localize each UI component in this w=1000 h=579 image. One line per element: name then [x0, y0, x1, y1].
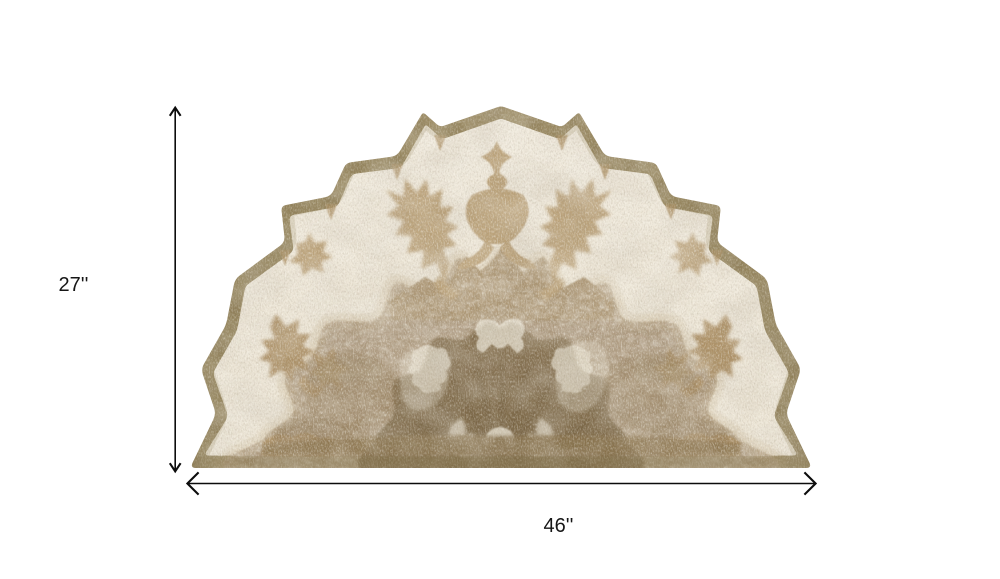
svg-text:27'': 27'' [59, 274, 89, 296]
svg-text:46'': 46'' [544, 515, 574, 537]
